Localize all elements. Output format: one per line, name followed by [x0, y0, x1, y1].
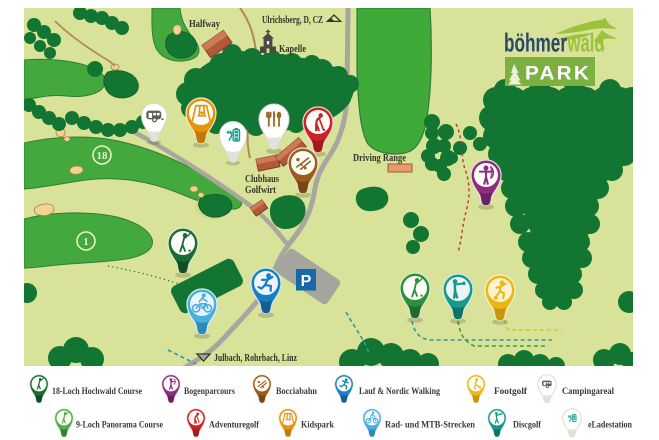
svg-text:18: 18	[97, 150, 109, 162]
svg-text:Footgolf: Footgolf	[494, 387, 528, 397]
svg-text:Driving Range: Driving Range	[353, 153, 406, 164]
svg-text:wald: wald	[567, 28, 605, 58]
svg-text:Discgolf: Discgolf	[513, 421, 542, 431]
svg-text:Golfwirt: Golfwirt	[245, 185, 277, 196]
svg-text:Lauf & Nordic Walking: Lauf & Nordic Walking	[359, 387, 440, 397]
svg-text:1: 1	[83, 236, 89, 248]
svg-text:Kapelle: Kapelle	[279, 44, 306, 55]
svg-text:Adventuregolf: Adventuregolf	[209, 421, 260, 431]
svg-text:Halfway: Halfway	[189, 19, 220, 30]
svg-text:PARK: PARK	[525, 64, 591, 85]
svg-text:Clubhaus: Clubhaus	[245, 174, 279, 185]
svg-text:Kidspark: Kidspark	[301, 421, 335, 431]
svg-text:Rad- und MTB-Strecken: Rad- und MTB-Strecken	[385, 421, 476, 431]
svg-text:Julbach, Rohrbach, Linz: Julbach, Rohrbach, Linz	[214, 353, 297, 364]
svg-text:18-Loch Hochwald Course: 18-Loch Hochwald Course	[52, 387, 142, 397]
svg-text:böhmer: böhmer	[504, 28, 567, 58]
svg-text:P: P	[301, 273, 312, 290]
svg-text:eLadestation: eLadestation	[588, 421, 633, 431]
svg-text:9-Loch Panorama Course: 9-Loch Panorama Course	[76, 421, 163, 431]
svg-text:Ulrichsberg, D, CZ: Ulrichsberg, D, CZ	[262, 15, 323, 26]
svg-text:Campingareal: Campingareal	[562, 387, 614, 397]
svg-text:Bogenparcours: Bogenparcours	[184, 387, 235, 397]
svg-text:Bocciabahn: Bocciabahn	[276, 387, 318, 397]
